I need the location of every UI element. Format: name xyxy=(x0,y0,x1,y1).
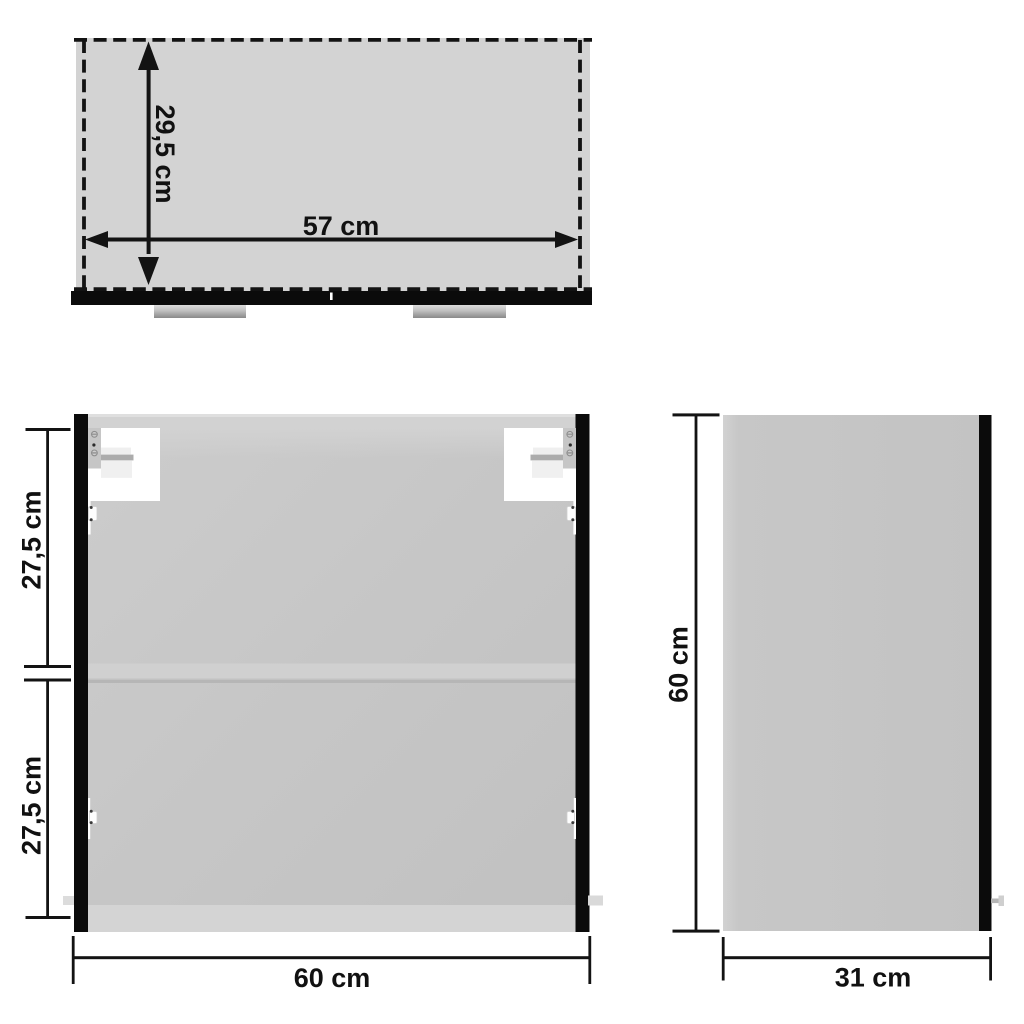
svg-text:29,5 cm: 29,5 cm xyxy=(150,104,180,203)
svg-text:57 cm: 57 cm xyxy=(303,211,380,241)
svg-text:31 cm: 31 cm xyxy=(835,963,912,993)
svg-text:60 cm: 60 cm xyxy=(664,626,694,703)
svg-text:27,5 cm: 27,5 cm xyxy=(17,490,47,589)
svg-text:60 cm: 60 cm xyxy=(294,963,371,993)
svg-text:27,5 cm: 27,5 cm xyxy=(17,756,47,855)
